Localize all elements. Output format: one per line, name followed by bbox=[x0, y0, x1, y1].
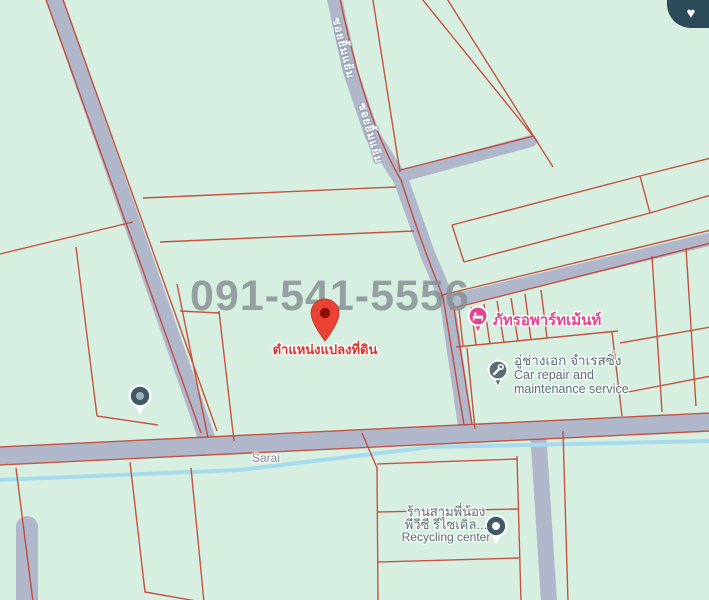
pin-label: ตำแหน่งแปลงที่ดิน bbox=[245, 339, 405, 360]
road-bottom-vertical bbox=[538, 431, 549, 600]
unnamed-poi-pin[interactable] bbox=[126, 383, 154, 416]
road-right-diagonal bbox=[447, 238, 709, 302]
car-repair-name-th: อู่ช่างเอก จำเรสซิ่ง bbox=[514, 354, 629, 368]
apartment-poi-label[interactable]: ภัทรอพาร์ทเม้นท์ bbox=[493, 308, 601, 332]
canal-label: Sarai bbox=[252, 451, 280, 465]
road-bottom-horizontal bbox=[0, 422, 709, 456]
car-repair-name-en-2: maintenance service bbox=[514, 382, 629, 396]
road-stub-deadend bbox=[402, 141, 531, 176]
location-pin-icon[interactable] bbox=[308, 298, 342, 342]
car-repair-poi-pin[interactable] bbox=[486, 359, 510, 388]
recycling-poi-label[interactable]: ร้านสามพี่น้อง พีวีซี รีไซเคิล... Recycl… bbox=[390, 505, 502, 544]
recycling-name-en: Recycling center bbox=[390, 531, 502, 544]
car-repair-poi-label[interactable]: อู่ช่างเอก จำเรสซิ่ง Car repair and main… bbox=[514, 354, 629, 396]
place-dot-icon bbox=[136, 392, 144, 400]
apartment-poi-pin[interactable] bbox=[466, 305, 490, 334]
map-canvas[interactable]: 091-541-5556 ซอยยิ้มแย้ม ซอยยิ้มแย้ม Sar… bbox=[0, 0, 709, 600]
car-repair-name-en-1: Car repair and bbox=[514, 368, 629, 382]
road-left-diagonal bbox=[52, 0, 208, 442]
heart-icon: ♥ bbox=[681, 6, 696, 23]
